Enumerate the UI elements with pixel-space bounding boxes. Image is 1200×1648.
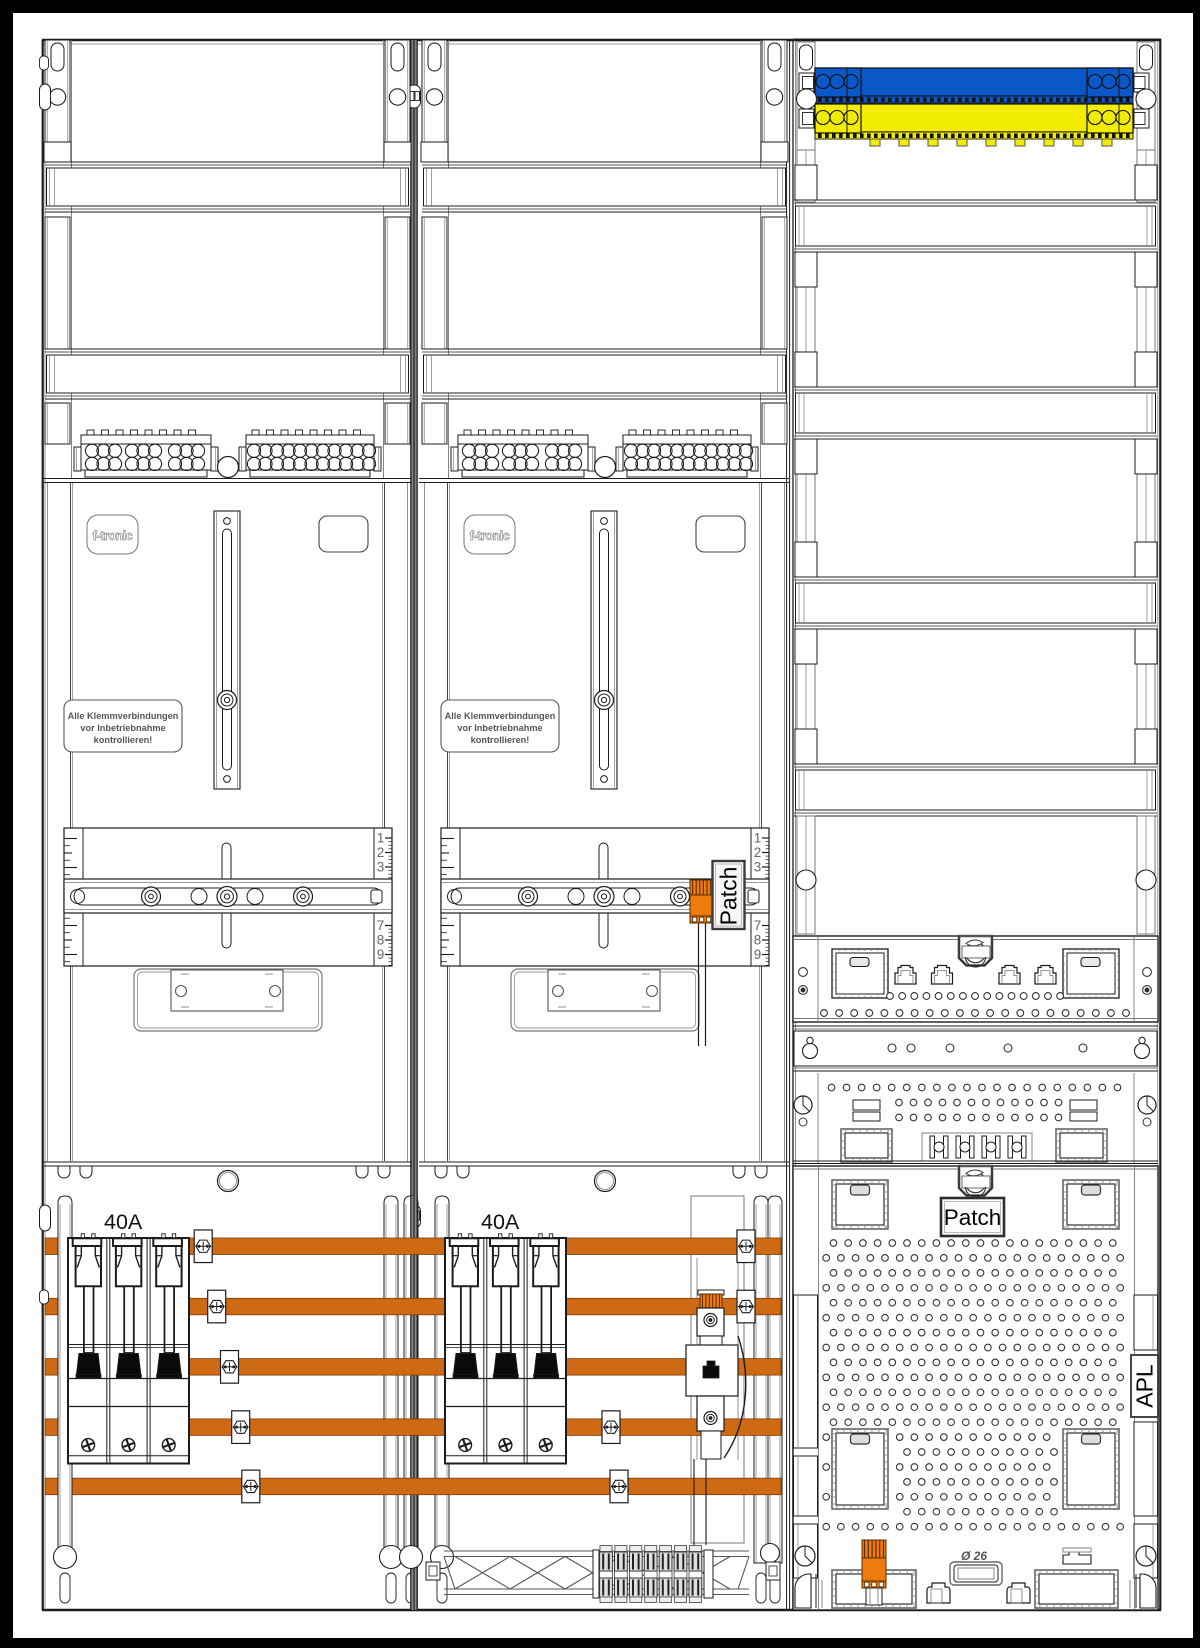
svg-text:1: 1	[377, 831, 385, 846]
svg-text:7: 7	[377, 918, 385, 933]
svg-text:3: 3	[377, 860, 385, 875]
svg-text:40A: 40A	[481, 1210, 520, 1234]
svg-text:kontrollieren!: kontrollieren!	[471, 735, 530, 745]
svg-text:f-tronic: f-tronic	[93, 529, 133, 543]
svg-text:APL: APL	[1132, 1364, 1158, 1408]
svg-text:kontrollieren!: kontrollieren!	[94, 735, 153, 745]
svg-text:Patch: Patch	[944, 1205, 1002, 1230]
svg-text:2: 2	[377, 845, 385, 860]
svg-text:Alle Klemmverbindungen: Alle Klemmverbindungen	[68, 711, 179, 721]
svg-text:3: 3	[754, 860, 762, 875]
svg-text:2: 2	[754, 845, 762, 860]
svg-text:9: 9	[754, 947, 762, 962]
svg-text:Ø 26: Ø 26	[961, 1549, 987, 1563]
svg-text:8: 8	[377, 933, 385, 948]
svg-text:40A: 40A	[104, 1210, 143, 1234]
svg-text:7: 7	[754, 918, 762, 933]
svg-text:8: 8	[754, 933, 762, 948]
svg-text:1: 1	[754, 831, 762, 846]
svg-text:Alle Klemmverbindungen: Alle Klemmverbindungen	[445, 711, 556, 721]
svg-text:vor Inbetriebnahme: vor Inbetriebnahme	[80, 723, 165, 733]
svg-text:vor Inbetriebnahme: vor Inbetriebnahme	[457, 723, 542, 733]
svg-text:f-tronic: f-tronic	[470, 529, 510, 543]
svg-text:Patch: Patch	[716, 867, 742, 926]
svg-text:9: 9	[377, 947, 385, 962]
